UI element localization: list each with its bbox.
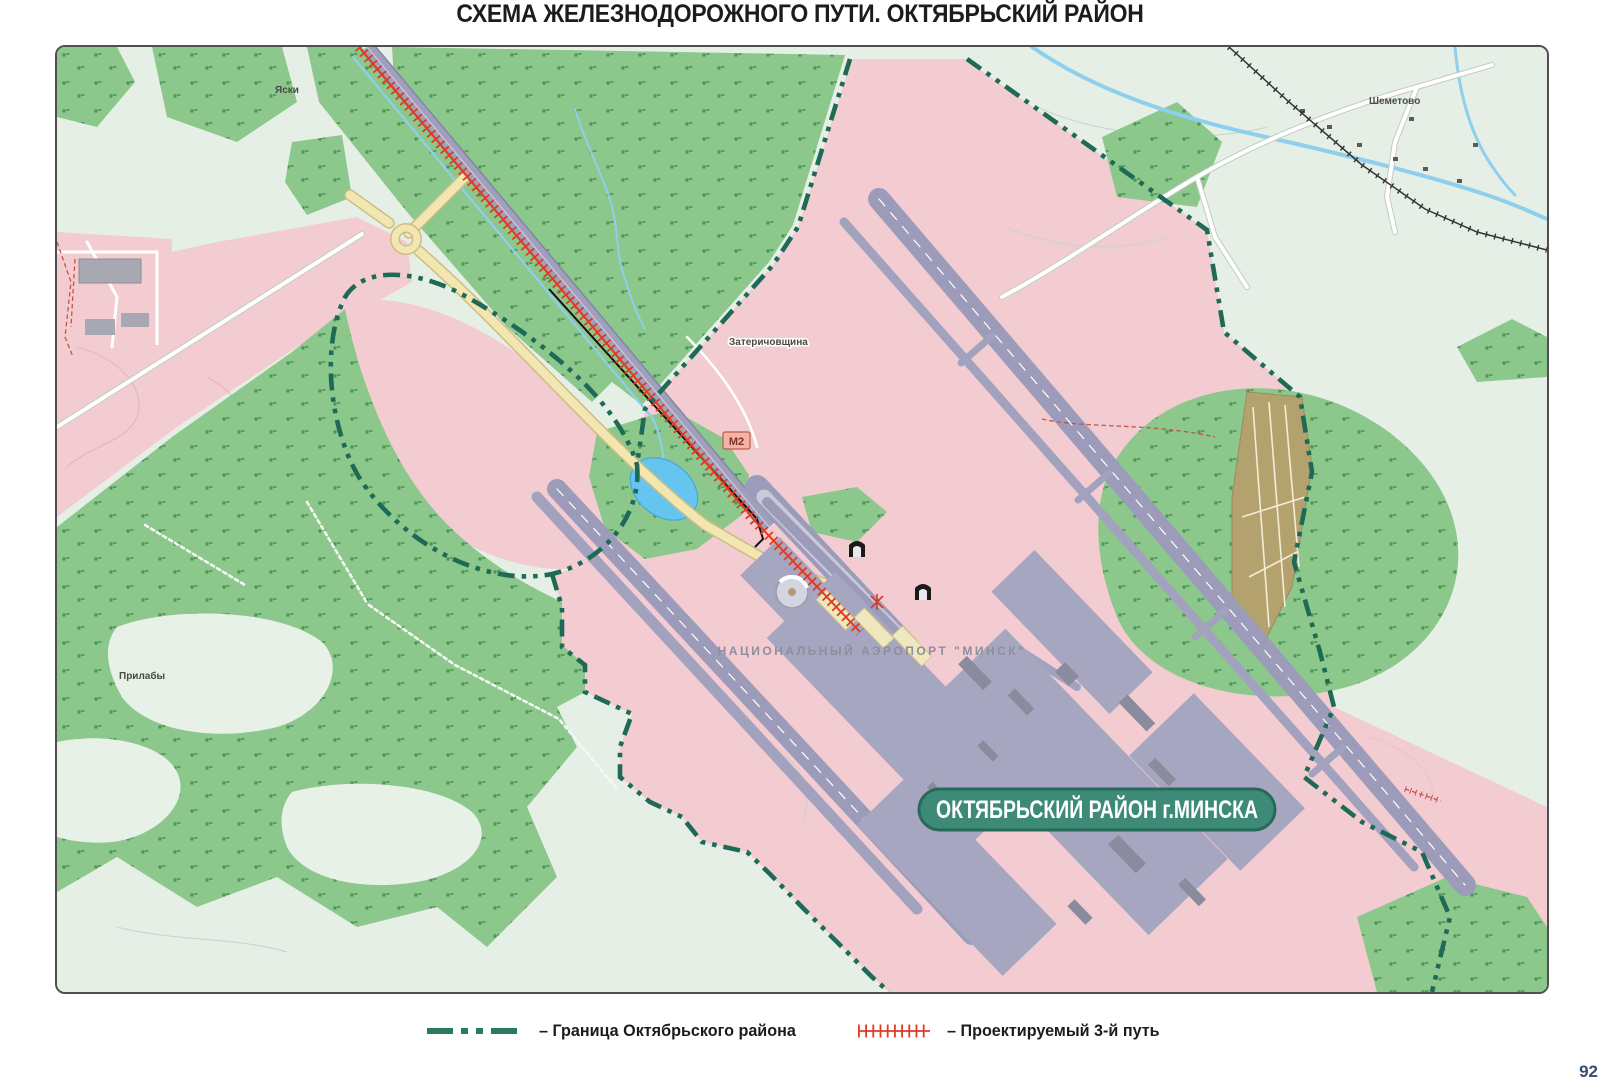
page-title: СХЕМА ЖЕЛЕЗНОДОРОЖНОГО ПУТИ. ОКТЯБРЬСКИЙ…	[64, 0, 1536, 29]
legend-label-boundary: – Граница Октябрьского района	[539, 1021, 796, 1041]
legend-item-boundary: – Граница Октябрьского района	[425, 1016, 809, 1046]
district-map: М2 Яски Шеметово Затеричовщина Прилабы Н…	[57, 47, 1547, 992]
bridge-icon	[915, 584, 931, 600]
airport-name-label: НАЦИОНАЛЬНЫЙ АЭРОПОРТ "МИНСК"	[718, 643, 1027, 658]
projected-track-legend-symbol	[855, 1023, 933, 1039]
terminal-building	[776, 576, 808, 608]
village-label-yaski: Яски	[275, 85, 299, 96]
m2-shield-label: М2	[729, 436, 744, 448]
page-number: 92	[1579, 1062, 1598, 1082]
village-label-shemetovo: Шеметово	[1369, 96, 1420, 107]
legend-label-projected-track: – Проектируемый 3-й путь	[947, 1021, 1160, 1041]
village-label-prilaby: Прилабы	[119, 670, 165, 682]
bridge-icon	[849, 541, 865, 557]
village-label-center: Затеричовщина	[729, 337, 808, 348]
m2-road-shield: М2	[723, 432, 750, 449]
map-canvas: М2 Яски Шеметово Затеричовщина Прилабы Н…	[55, 45, 1549, 994]
district-badge: ОКТЯБРЬСКИЙ РАЙОН г.МИНСКА	[919, 789, 1275, 830]
district-boundary-legend-symbol	[425, 1025, 525, 1037]
legend-item-projected-track: – Проектируемый 3-й путь	[855, 1016, 1171, 1046]
district-badge-label: ОКТЯБРЬСКИЙ РАЙОН г.МИНСКА	[936, 794, 1258, 824]
legend: – Граница Октябрьского района – Проектир…	[0, 1008, 1600, 1054]
